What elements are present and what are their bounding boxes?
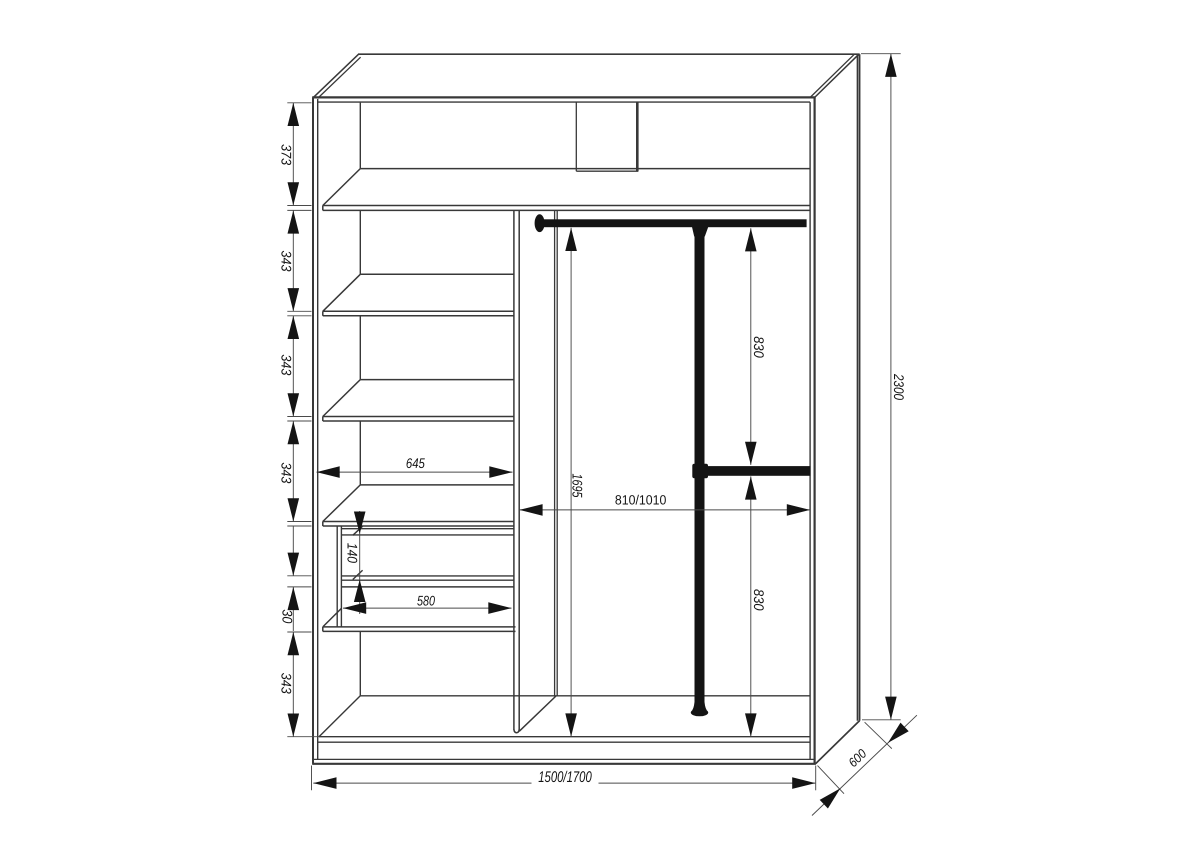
svg-text:830: 830 [751, 589, 767, 611]
svg-text:140: 140 [345, 543, 361, 563]
svg-text:830: 830 [751, 336, 767, 358]
svg-text:30: 30 [280, 609, 296, 623]
svg-text:343: 343 [279, 251, 295, 272]
svg-text:343: 343 [279, 354, 295, 375]
svg-text:580: 580 [417, 593, 435, 609]
svg-text:373: 373 [279, 144, 295, 165]
svg-text:2300: 2300 [891, 373, 907, 400]
svg-text:810/1010: 810/1010 [615, 493, 667, 508]
svg-text:343: 343 [279, 462, 295, 483]
svg-text:343: 343 [279, 673, 295, 694]
svg-text:1695: 1695 [569, 474, 585, 498]
svg-text:645: 645 [406, 455, 425, 471]
svg-text:1500/1700: 1500/1700 [538, 769, 592, 786]
